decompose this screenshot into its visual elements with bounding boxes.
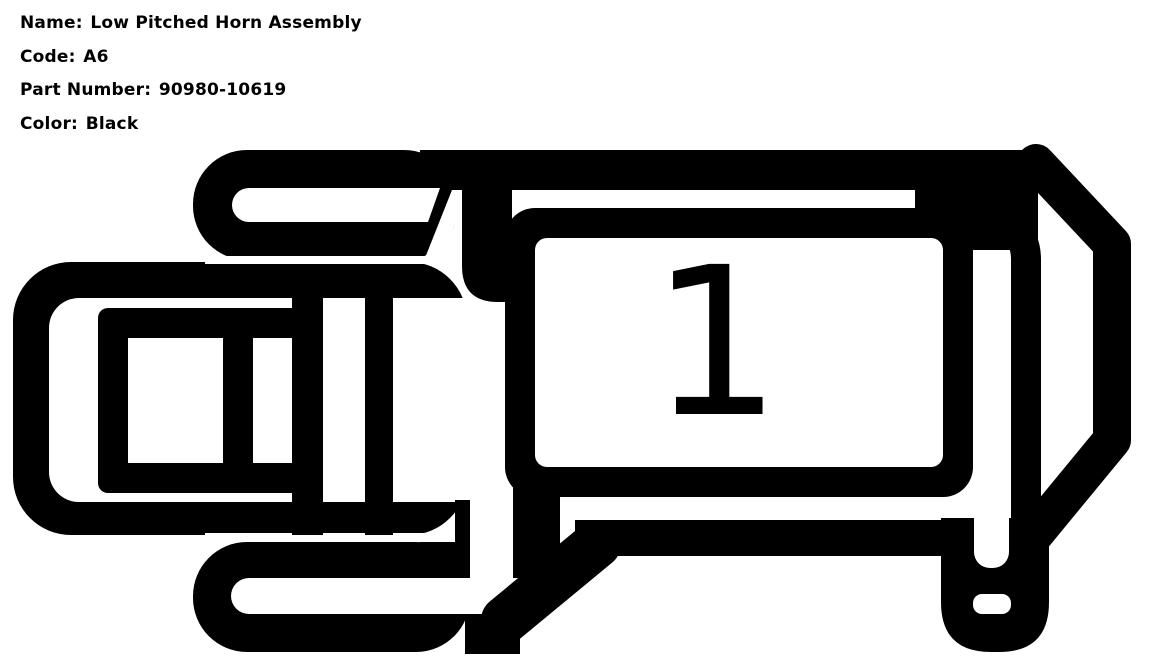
spec-value-name: Low Pitched Horn Assembly [90, 13, 361, 33]
spec-label-code: Code: [20, 47, 76, 67]
spec-label-part-number: Part Number: [20, 80, 151, 100]
neck-bar-2 [365, 265, 393, 535]
spec-line-code: Code:A6 [20, 41, 362, 75]
cavity-1: 1 [505, 208, 973, 497]
catalog-page: Name:Low Pitched Horn Assembly Code:A6 P… [0, 0, 1152, 660]
terminal-window [98, 308, 323, 493]
spec-value-code: A6 [83, 47, 108, 67]
foot-slot [973, 594, 1011, 614]
terminal-cell-2 [253, 338, 292, 463]
body-bottom-edge [575, 520, 945, 556]
part-spec-block: Name:Low Pitched Horn Assembly Code:A6 P… [20, 7, 362, 141]
spec-label-name: Name: [20, 13, 83, 33]
spec-label-color: Color: [20, 114, 78, 134]
top-tab-slot [232, 188, 440, 222]
spec-line-part-number: Part Number:90980-10619 [20, 74, 362, 108]
bottom-tab-slot [231, 578, 520, 614]
spec-line-color: Color:Black [20, 108, 362, 142]
terminal-cell-1 [128, 338, 223, 463]
spec-line-name: Name:Low Pitched Horn Assembly [20, 7, 362, 41]
rear-housing [13, 256, 520, 542]
spec-value-color: Black [86, 114, 139, 134]
cavity-1-label: 1 [650, 223, 781, 463]
neck-bar-1 [292, 265, 323, 535]
spec-value-part-number: 90980-10619 [159, 80, 287, 100]
